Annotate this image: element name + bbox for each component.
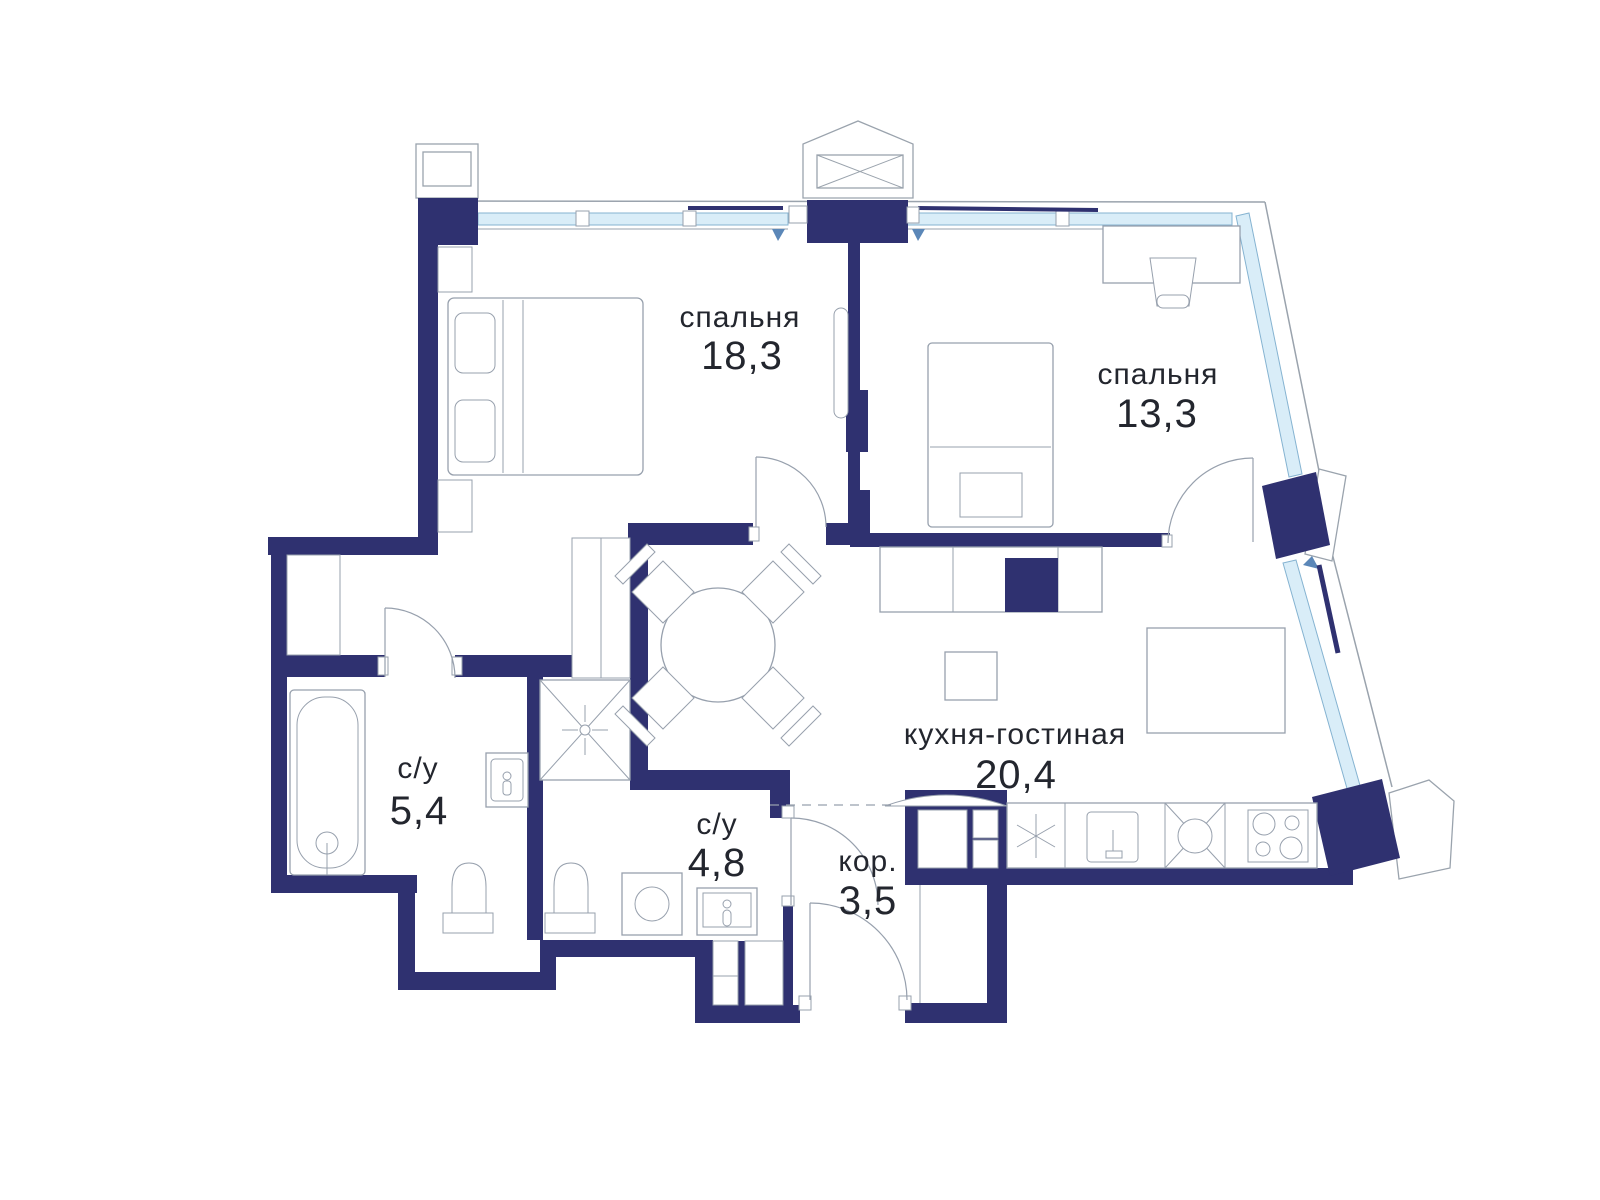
coffee-table <box>945 652 997 700</box>
wall <box>846 390 868 452</box>
duct-inset <box>973 810 998 838</box>
room-label-bedroom-1: спальня <box>680 301 801 334</box>
room-label-bathroom-2: с/у <box>696 808 737 841</box>
nightstand <box>438 480 472 532</box>
wall <box>695 940 713 1023</box>
toilet-tank <box>545 913 595 933</box>
toilet-bowl <box>452 863 486 913</box>
duct-inset <box>713 941 738 1005</box>
window-mullion <box>683 211 696 226</box>
door-jamb <box>782 896 794 906</box>
wall <box>987 885 1007 1023</box>
bathtub-inner <box>297 697 358 868</box>
floor-plan-canvas: спальня18,3спальня13,3кухня-гостиная20,4… <box>0 0 1600 1200</box>
room-area-bathroom-1: 5,4 <box>390 789 449 833</box>
stove <box>1248 810 1308 862</box>
wall <box>271 537 287 877</box>
room-area-bathroom-2: 4,8 <box>688 841 747 885</box>
room-label-corridor: кор. <box>838 845 897 878</box>
balcony-box-bottom-right <box>1389 780 1454 879</box>
vent-arrow-icon <box>1303 556 1319 569</box>
toilet-bowl <box>554 863 588 913</box>
wall <box>630 770 770 790</box>
door-jamb <box>378 657 388 675</box>
window-mullion <box>1056 211 1069 226</box>
room-area-kitchen-living: 20,4 <box>975 753 1057 797</box>
wall <box>905 868 1353 885</box>
wall <box>738 941 745 1005</box>
window-diagonal-upper <box>1236 213 1302 477</box>
wall <box>850 533 1170 547</box>
door-jamb <box>799 996 811 1010</box>
kitchen-faucet-icon <box>1106 851 1122 858</box>
desk-chair-back <box>1157 295 1189 308</box>
wall <box>826 523 862 545</box>
duct-inset <box>745 941 783 1005</box>
window-lintel <box>918 208 1098 210</box>
wall <box>268 537 438 555</box>
wall <box>287 655 385 677</box>
nightstand <box>438 247 472 292</box>
pillow <box>455 400 495 462</box>
kitchen-island <box>1147 628 1285 733</box>
bed-2-pillow <box>960 473 1022 517</box>
room-area-bedroom-2: 13,3 <box>1116 392 1198 436</box>
washing-machine <box>622 873 682 935</box>
room-area-corridor: 3,5 <box>839 879 898 923</box>
window-bedroom-1 <box>478 213 788 225</box>
pillow <box>455 313 495 373</box>
window-jamb <box>789 206 807 223</box>
door-arc-bedroom-1 <box>756 457 826 527</box>
wall-pier-bottom-right <box>1312 779 1400 876</box>
window-mullion <box>576 211 589 226</box>
wall <box>807 200 908 243</box>
door-jamb <box>749 527 759 541</box>
wardrobe-block <box>1005 558 1058 612</box>
wall <box>540 940 713 957</box>
room-area-bedroom-1: 18,3 <box>701 334 783 378</box>
vent-arrow-icon <box>772 229 785 241</box>
sliding-door-leaf <box>834 308 848 418</box>
balcony-box-top-left-inner <box>423 152 471 186</box>
door-jamb <box>899 996 911 1010</box>
appliance-circle <box>1178 819 1212 853</box>
duct-inset <box>973 840 998 868</box>
closet-hall-left <box>287 555 340 655</box>
window-diagonal-lower <box>1283 560 1361 792</box>
door-arc-bathroom-1 <box>385 608 455 678</box>
window-lintel <box>1319 565 1338 653</box>
vent-arrow-icon <box>912 229 925 241</box>
floor-plan: спальня18,3спальня13,3кухня-гостиная20,4… <box>0 0 1600 1200</box>
duct-inset <box>918 810 967 868</box>
shower-drain <box>580 725 590 735</box>
room-label-kitchen-living: кухня-гостиная <box>904 718 1126 751</box>
wall <box>418 198 438 555</box>
wall <box>848 243 860 533</box>
wall <box>271 875 417 893</box>
room-label-bathroom-1: с/у <box>397 752 438 785</box>
door-arc-bedroom-2 <box>1168 458 1253 543</box>
tv-cabinet <box>880 547 1102 612</box>
toilet-tank <box>443 913 493 933</box>
room-label-bedroom-2: спальня <box>1098 358 1219 391</box>
door-jamb <box>782 806 794 818</box>
wall <box>628 523 753 545</box>
window-jamb <box>907 207 919 223</box>
door-jamb <box>1162 535 1172 547</box>
wall <box>398 972 556 990</box>
